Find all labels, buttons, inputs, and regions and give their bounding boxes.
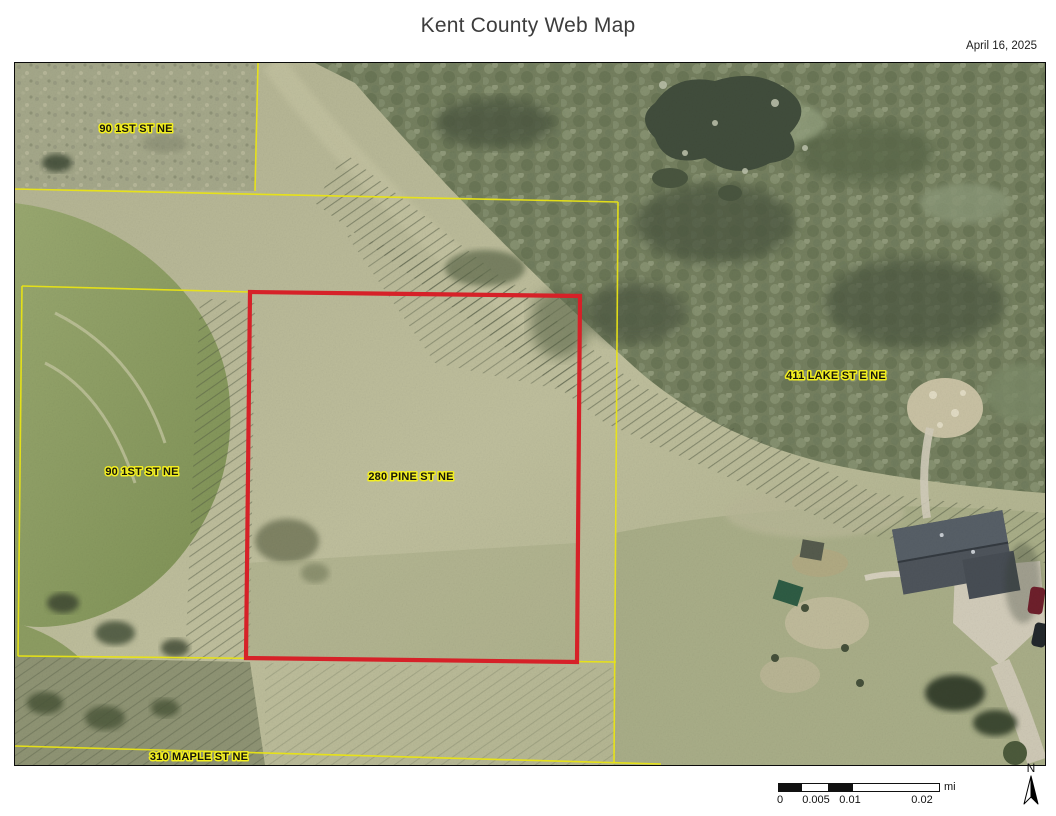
north-label: N [1016,762,1046,775]
parcel-address-label: 411 LAKE ST E NE [786,370,886,382]
map-date: April 16, 2025 [966,40,1037,52]
scale-tick: 0.01 [839,794,860,806]
parcel-address-label: 310 MAPLE ST NE [150,751,248,763]
map-canvas: 90 1ST ST NE90 1ST ST NE280 PINE ST NE41… [14,62,1046,766]
parcel-address-label: 90 1ST ST NE [99,123,172,135]
north-arrow-icon [1020,775,1042,807]
print-page: Kent County Web Map April 16, 2025 [0,0,1056,816]
scale-tick: 0.02 [911,794,932,806]
parcel-address-label: 280 PINE ST NE [368,471,453,483]
scale-bar-graphic [778,783,940,792]
scale-unit: mi [944,781,956,793]
parcel-address-label: 90 1ST ST NE [105,466,178,478]
scale-bar: 0 0.005 0.01 0.02 mi [778,783,978,809]
scale-tick: 0.005 [802,794,830,806]
scale-tick: 0 [777,794,783,806]
map-title: Kent County Web Map [0,14,1056,38]
aerial-map: 90 1ST ST NE90 1ST ST NE280 PINE ST NE41… [15,63,1045,765]
north-arrow: N [1016,762,1046,814]
